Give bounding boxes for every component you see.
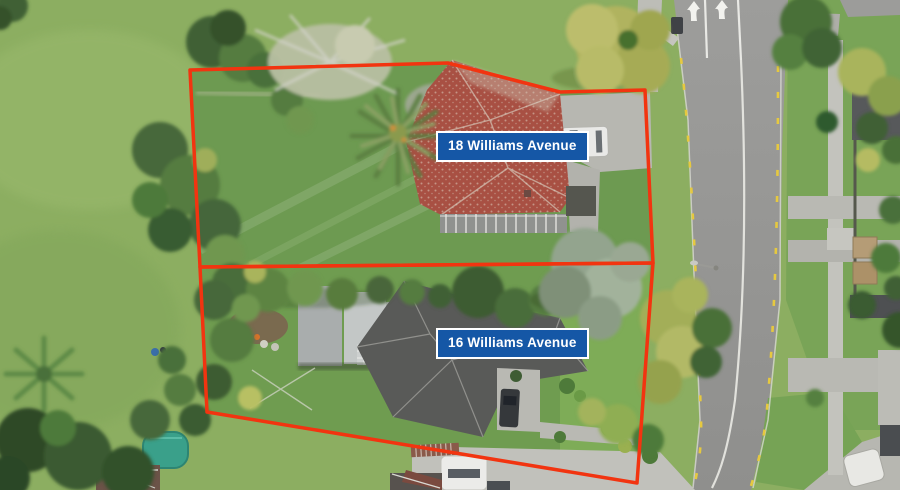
car-in-courtyard-16 — [499, 389, 520, 428]
aerial-photograph: 18 Williams Avenue 16 Williams Avenue — [0, 0, 900, 490]
property-label-18: 18 Williams Avenue — [436, 131, 589, 162]
bottom-edge-roof — [390, 470, 442, 490]
outbuilding — [566, 186, 596, 216]
parked-car — [671, 17, 683, 34]
property-label-16: 16 Williams Avenue — [436, 328, 589, 359]
aerial-scene — [0, 0, 900, 490]
car-bottom-driveway — [441, 456, 487, 490]
chimney — [524, 190, 531, 197]
house-18-veranda — [440, 214, 567, 233]
